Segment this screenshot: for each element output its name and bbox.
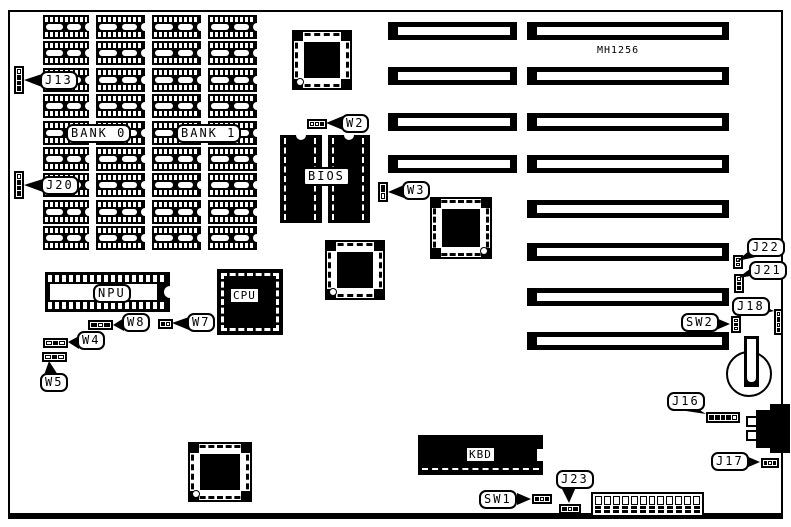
pin-row	[154, 70, 199, 75]
power-comb-row	[595, 506, 700, 509]
pin	[568, 507, 573, 511]
pin-row	[98, 111, 143, 116]
power-comb-row	[595, 510, 700, 513]
pin1-dot	[192, 490, 200, 498]
label-bank0: BANK 0	[66, 124, 131, 143]
memory-chip	[96, 94, 145, 118]
npu-pins-top	[48, 275, 167, 282]
chip-notch	[85, 23, 89, 31]
j18-connector	[774, 309, 783, 335]
pin-row	[45, 17, 87, 22]
w8-jumper	[88, 320, 113, 330]
socket-slot	[99, 235, 117, 241]
motherboard-diagram: MH1256 NPU CPU	[0, 0, 791, 527]
pin	[535, 497, 539, 501]
comb-tooth	[685, 510, 691, 513]
power-pin	[631, 496, 638, 505]
socket-slot	[99, 50, 117, 56]
j20-connector	[14, 171, 24, 199]
memory-chip	[208, 68, 257, 92]
w5-jumper	[42, 352, 67, 362]
npu-notch	[164, 286, 170, 298]
pin-row	[210, 96, 255, 101]
pin	[732, 415, 737, 420]
power-pin	[684, 496, 691, 505]
din-tab	[746, 430, 758, 441]
socket-slot	[46, 103, 63, 109]
pin	[381, 185, 385, 192]
pin	[91, 323, 97, 327]
comb-tooth	[613, 510, 619, 513]
pin-row	[210, 32, 255, 37]
pin-row	[154, 85, 199, 90]
pin-row	[154, 149, 199, 154]
label-w3: W3	[402, 181, 430, 200]
plcc-die	[304, 42, 340, 78]
socket-slot	[67, 156, 81, 162]
chip-notch	[141, 234, 145, 242]
socket-slot	[155, 50, 173, 56]
pin	[310, 122, 314, 126]
pin-row	[154, 228, 199, 233]
memory-chip	[43, 200, 89, 224]
pin-row	[210, 111, 255, 116]
socket-slot	[234, 77, 249, 83]
plcc-chip-1	[292, 30, 352, 90]
pin	[17, 191, 21, 196]
pin	[734, 323, 738, 326]
socket-slot	[178, 24, 193, 30]
pin-row	[154, 243, 199, 248]
plcc-corner	[294, 32, 303, 41]
slot-opening	[537, 337, 722, 345]
npu-pins-bottom	[48, 302, 167, 309]
chip-notch	[253, 208, 257, 216]
j17-connector	[761, 458, 779, 468]
pin	[777, 317, 780, 321]
comb-tooth	[676, 506, 682, 509]
socket-slot	[46, 235, 63, 241]
expansion-slot-long	[527, 332, 729, 350]
pin	[381, 193, 385, 200]
chip-notch	[537, 449, 545, 461]
memory-chip	[96, 68, 145, 92]
plcc-corner	[241, 444, 250, 453]
memory-chip	[152, 226, 201, 250]
pin-row	[154, 190, 199, 195]
pin	[734, 327, 738, 330]
pin-row	[422, 468, 539, 470]
comb-tooth	[685, 506, 691, 509]
pin-row	[98, 228, 143, 233]
expansion-slot-short	[388, 67, 517, 85]
socket-slot	[46, 209, 63, 215]
socket-slot	[99, 182, 117, 188]
pin	[764, 461, 767, 465]
pin	[777, 312, 780, 316]
chip-notch	[85, 49, 89, 57]
socket-slot	[234, 50, 249, 56]
pin-row	[210, 70, 255, 75]
label-w7: W7	[187, 313, 215, 332]
label-w8: W8	[122, 313, 150, 332]
chip-notch	[197, 234, 201, 242]
chip-notch	[253, 155, 257, 163]
plcc-corner	[327, 242, 336, 251]
slot-opening	[537, 27, 722, 35]
power-pin	[649, 496, 656, 505]
label-j21: J21	[749, 261, 787, 280]
comb-tooth	[667, 510, 673, 513]
label-w2: W2	[341, 114, 369, 133]
expansion-slot-long	[527, 288, 729, 306]
label-j17: J17	[711, 452, 749, 471]
pin	[17, 186, 21, 191]
power-pin	[613, 496, 620, 505]
plcc-die	[442, 209, 480, 247]
pin-row	[210, 43, 255, 48]
label-cpu: CPU	[230, 288, 259, 303]
sw1-switch	[532, 494, 552, 504]
socket-slot	[46, 24, 63, 30]
comb-tooth	[694, 510, 700, 513]
pin-row	[45, 111, 87, 116]
socket-slot	[67, 50, 81, 56]
pin-row	[98, 175, 143, 180]
pin	[573, 507, 578, 511]
w4-jumper	[43, 338, 68, 348]
memory-chip	[96, 15, 145, 39]
pin	[736, 258, 740, 262]
pin	[161, 322, 165, 326]
memory-chip	[208, 147, 257, 171]
socket-slot	[178, 156, 193, 162]
chip-notch	[85, 155, 89, 163]
socket-slot	[46, 50, 63, 56]
slot-opening	[537, 72, 722, 80]
socket-slot	[211, 77, 229, 83]
socket-slot	[178, 50, 193, 56]
pin-row	[98, 149, 143, 154]
comb-tooth	[667, 506, 673, 509]
socket-slot	[234, 235, 249, 241]
memory-chip	[208, 15, 257, 39]
pin-row	[98, 217, 143, 222]
plcc-corner	[432, 248, 441, 257]
slot-opening	[537, 160, 722, 168]
pin-row	[98, 17, 143, 22]
pin	[709, 415, 714, 420]
plcc-die	[337, 252, 373, 288]
expansion-slot-long	[527, 113, 729, 131]
socket-slot	[234, 182, 249, 188]
expansion-slot-short	[388, 155, 517, 173]
pin-row	[45, 243, 87, 248]
label-j16: J16	[667, 392, 705, 411]
pin-row	[98, 96, 143, 101]
memory-chip	[96, 226, 145, 250]
j23-connector	[559, 504, 581, 514]
board-part-number: MH1256	[597, 45, 639, 56]
label-kbd: KBD	[466, 447, 495, 462]
plcc-chip-3	[430, 197, 492, 259]
socket-slot	[155, 235, 173, 241]
label-j22: J22	[747, 238, 785, 257]
socket-slot	[122, 50, 137, 56]
label-sw1: SW1	[479, 490, 517, 509]
pin	[17, 180, 21, 185]
pin-row	[154, 202, 199, 207]
slot-opening	[537, 118, 722, 126]
chip-notch	[253, 129, 257, 137]
chip-notch	[141, 102, 145, 110]
comb-tooth	[640, 510, 646, 513]
chip-notch	[85, 208, 89, 216]
memory-chip	[43, 147, 89, 171]
socket-slot	[67, 235, 81, 241]
pin-row	[210, 202, 255, 207]
slot-opening	[398, 118, 510, 126]
power-pin	[675, 496, 682, 505]
pin	[721, 415, 726, 420]
expansion-slot-short	[388, 113, 517, 131]
pin-row	[45, 149, 87, 154]
socket-slot	[99, 24, 117, 30]
socket-slot	[99, 209, 117, 215]
socket-slot	[234, 103, 249, 109]
socket-slot	[155, 156, 173, 162]
slot-opening	[398, 72, 510, 80]
pin	[768, 461, 771, 465]
socket-slot	[234, 209, 249, 215]
label-bios: BIOS	[303, 167, 350, 186]
chip-notch	[197, 102, 201, 110]
comb-tooth	[613, 506, 619, 509]
plcc-corner	[341, 79, 350, 88]
j13-connector	[14, 66, 24, 94]
socket-slot	[67, 24, 81, 30]
chip-notch	[85, 181, 89, 189]
slot-opening	[537, 248, 722, 256]
comb-tooth	[595, 510, 601, 513]
pin-row	[98, 202, 143, 207]
memory-chip	[152, 200, 201, 224]
chip-notch	[141, 155, 145, 163]
chip-notch	[197, 76, 201, 84]
socket-slot	[122, 156, 137, 162]
socket-slot	[155, 24, 173, 30]
memory-chip	[152, 68, 201, 92]
plcc-corner	[190, 444, 199, 453]
w7-jumper	[158, 319, 173, 329]
socket-slot	[234, 24, 249, 30]
socket-slot	[122, 182, 137, 188]
power-pin	[693, 496, 700, 505]
chip-notch	[141, 49, 145, 57]
label-j23: J23	[556, 470, 594, 489]
pin	[52, 355, 58, 359]
plcc-corner	[341, 32, 350, 41]
pin	[715, 415, 720, 420]
pin-row	[210, 175, 255, 180]
pin-row	[284, 138, 286, 220]
pin-row	[210, 17, 255, 22]
pin-row	[98, 190, 143, 195]
expansion-slot-long	[527, 155, 729, 173]
power-pin	[657, 496, 664, 505]
slot-opening	[537, 293, 722, 301]
plcc-chip-2	[325, 240, 385, 300]
pin-row	[154, 217, 199, 222]
pin-row	[210, 164, 255, 169]
pin-row	[45, 32, 87, 37]
chip-notch	[197, 49, 201, 57]
memory-chip	[208, 94, 257, 118]
pin-row	[45, 58, 87, 63]
socket-slot	[211, 235, 229, 241]
socket-slot	[122, 24, 137, 30]
pin	[166, 322, 170, 326]
j22-connector	[733, 255, 743, 269]
power-pin	[595, 496, 602, 505]
pin-row	[210, 190, 255, 195]
pin-row	[45, 96, 87, 101]
slot-opening	[398, 160, 510, 168]
socket-slot	[155, 130, 173, 136]
pin-row	[98, 164, 143, 169]
pin	[17, 174, 21, 179]
pin-row	[98, 70, 143, 75]
power-pin	[666, 496, 673, 505]
comb-tooth	[631, 506, 637, 509]
pin	[46, 341, 52, 345]
comb-tooth	[604, 506, 610, 509]
pin	[734, 319, 738, 322]
chip-notch	[85, 76, 89, 84]
plcc-corner	[241, 491, 250, 500]
chip-notch	[253, 76, 257, 84]
socket-slot	[46, 156, 63, 162]
power-pin	[604, 496, 611, 505]
chip-notch	[253, 181, 257, 189]
socket-slot	[178, 182, 193, 188]
pin	[562, 507, 567, 511]
pin-row	[45, 164, 87, 169]
j21-connector	[734, 274, 744, 293]
socket-slot	[234, 156, 249, 162]
socket-slot	[155, 209, 173, 215]
pin-row	[45, 202, 87, 207]
memory-chip	[96, 200, 145, 224]
memory-chip	[208, 173, 257, 197]
comb-tooth	[640, 506, 646, 509]
chip-notch	[197, 23, 201, 31]
chip-notch	[344, 135, 354, 140]
chip-notch	[85, 234, 89, 242]
socket-slot	[211, 103, 229, 109]
comb-tooth	[595, 506, 601, 509]
pin-row	[154, 43, 199, 48]
pin-row	[98, 85, 143, 90]
comb-tooth	[649, 510, 655, 513]
comb-tooth	[658, 510, 664, 513]
socket-slot	[122, 209, 137, 215]
slot-opening	[537, 205, 722, 213]
pin	[545, 497, 549, 501]
comb-tooth	[622, 510, 628, 513]
comb-tooth	[658, 506, 664, 509]
pin-row	[154, 17, 199, 22]
chip-notch	[141, 23, 145, 31]
chip-notch	[197, 181, 201, 189]
pin	[320, 122, 324, 126]
pin-row	[210, 58, 255, 63]
chip-notch	[141, 76, 145, 84]
chip-notch	[141, 129, 145, 137]
pin-row	[362, 138, 364, 220]
pin1-dot	[329, 288, 337, 296]
pin	[315, 122, 319, 126]
pin	[777, 328, 780, 332]
socket-slot	[155, 182, 173, 188]
expansion-slot-long	[527, 200, 729, 218]
comb-tooth	[631, 510, 637, 513]
socket-slot	[211, 209, 229, 215]
memory-chip	[152, 173, 201, 197]
pin	[58, 355, 64, 359]
memory-chip	[43, 15, 89, 39]
label-j18: J18	[732, 297, 770, 316]
label-sw2: SW2	[681, 313, 719, 332]
plcc-corner	[374, 242, 383, 251]
label-j20: J20	[41, 176, 79, 195]
memory-chip	[43, 41, 89, 65]
memory-chip	[152, 15, 201, 39]
socket-slot	[155, 103, 173, 109]
label-j13: J13	[40, 71, 78, 90]
memory-chip	[208, 200, 257, 224]
memory-chip	[152, 147, 201, 171]
chip-notch	[253, 23, 257, 31]
chip-notch	[296, 135, 306, 140]
pin-row	[45, 217, 87, 222]
pin	[98, 323, 104, 327]
pin	[17, 69, 21, 74]
pin	[737, 286, 741, 290]
socket-slot	[122, 235, 137, 241]
socket-slot	[122, 77, 137, 83]
pin-row	[154, 111, 199, 116]
w2-jumper	[307, 119, 327, 129]
expansion-slot-long	[527, 67, 729, 85]
chip-notch	[85, 102, 89, 110]
expansion-slot-long	[527, 22, 729, 40]
pin	[540, 497, 544, 501]
expansion-slot-long	[527, 243, 729, 261]
pin-row	[45, 228, 87, 233]
chip-notch	[253, 234, 257, 242]
pin1-dot	[296, 78, 304, 86]
socket-slot	[99, 156, 117, 162]
plcc-die	[200, 454, 240, 490]
pin-row	[210, 217, 255, 222]
pin-row	[154, 32, 199, 37]
plcc-chip-4	[188, 442, 252, 502]
din-tab	[746, 416, 758, 427]
chip-notch	[197, 155, 201, 163]
socket-slot	[211, 50, 229, 56]
socket-slot	[67, 103, 81, 109]
